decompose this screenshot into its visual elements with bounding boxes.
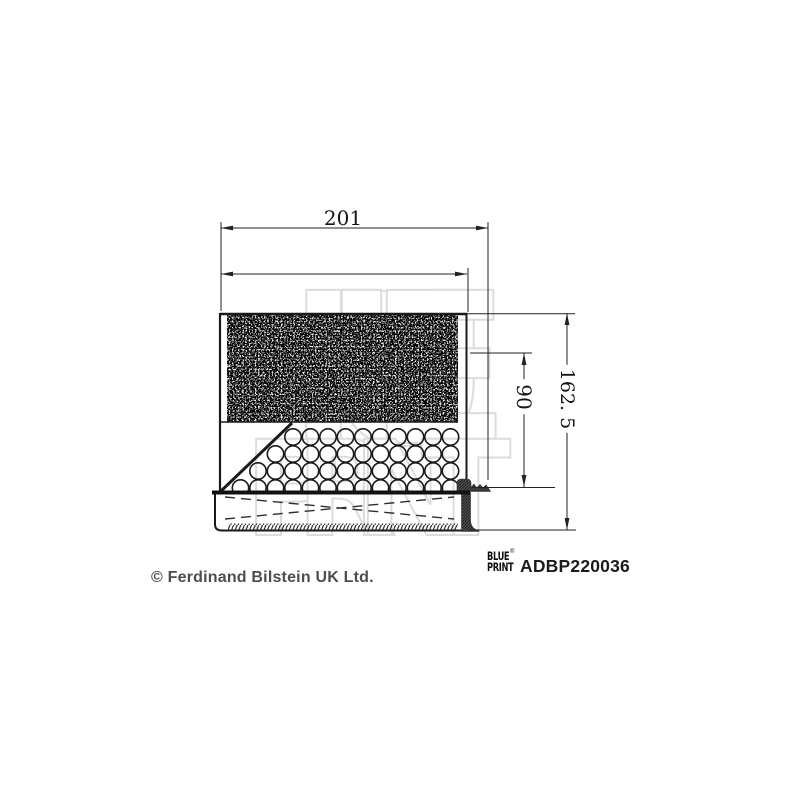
seal-gasket-section bbox=[457, 479, 491, 532]
perforation-hole bbox=[390, 446, 406, 462]
perforation-hole bbox=[337, 463, 353, 479]
dimension-label-width: 201 bbox=[324, 206, 362, 230]
perforation-hole bbox=[285, 463, 301, 479]
product-technical-drawing: BLUE PRINT bbox=[0, 0, 800, 800]
perforation-hole bbox=[390, 463, 406, 479]
perforation-hole bbox=[407, 446, 423, 462]
perforation-hole bbox=[442, 463, 458, 479]
perforation-hole bbox=[372, 446, 388, 462]
seal-bump bbox=[457, 479, 471, 492]
perforation-hole bbox=[372, 463, 388, 479]
blueprint-logo: BLUE PRINT ® bbox=[487, 551, 524, 572]
perforation-hole bbox=[390, 429, 406, 445]
perforation-hole bbox=[250, 463, 266, 479]
seal-side-strip bbox=[462, 493, 480, 532]
perforation-hole bbox=[355, 463, 371, 479]
perforation-hole bbox=[320, 429, 336, 445]
perforation-hole bbox=[302, 429, 318, 445]
perforation-hole bbox=[355, 429, 371, 445]
perforated-liner-section bbox=[232, 429, 458, 496]
perforation-hole bbox=[442, 446, 458, 462]
perforation-hole bbox=[425, 429, 441, 445]
perforation-hole bbox=[320, 446, 336, 462]
blueprint-logo-line2: PRINT bbox=[487, 562, 513, 573]
drawing-lineart bbox=[0, 0, 800, 800]
base-pan-hatch-strip bbox=[228, 524, 458, 531]
perforation-hole bbox=[285, 446, 301, 462]
part-number: ADBP220036 bbox=[520, 556, 630, 577]
dimension-label-total-height: 162. 5 bbox=[556, 365, 578, 433]
copyright-text: © Ferdinand Bilstein UK Ltd. bbox=[151, 569, 374, 587]
perforation-hole bbox=[407, 429, 423, 445]
base-pan-crossmark bbox=[225, 497, 454, 519]
perforation-hole bbox=[320, 463, 336, 479]
perforation-hole bbox=[302, 446, 318, 462]
perforation-hole bbox=[355, 446, 371, 462]
perforation-hole bbox=[302, 463, 318, 479]
perforation-hole bbox=[337, 446, 353, 462]
filter-media-speckle bbox=[227, 315, 458, 422]
perforation-hole bbox=[425, 463, 441, 479]
perforation-hole bbox=[267, 446, 283, 462]
perforation-hole bbox=[285, 429, 301, 445]
perforation-hole bbox=[442, 429, 458, 445]
perforation-hole bbox=[425, 446, 441, 462]
perforation-hole bbox=[337, 429, 353, 445]
registered-trademark-symbol: ® bbox=[510, 549, 514, 555]
perforation-hole bbox=[267, 463, 283, 479]
perforation-hole bbox=[372, 429, 388, 445]
perforation-hole bbox=[407, 463, 423, 479]
dimension-label-inner-height: 90 bbox=[512, 379, 536, 414]
